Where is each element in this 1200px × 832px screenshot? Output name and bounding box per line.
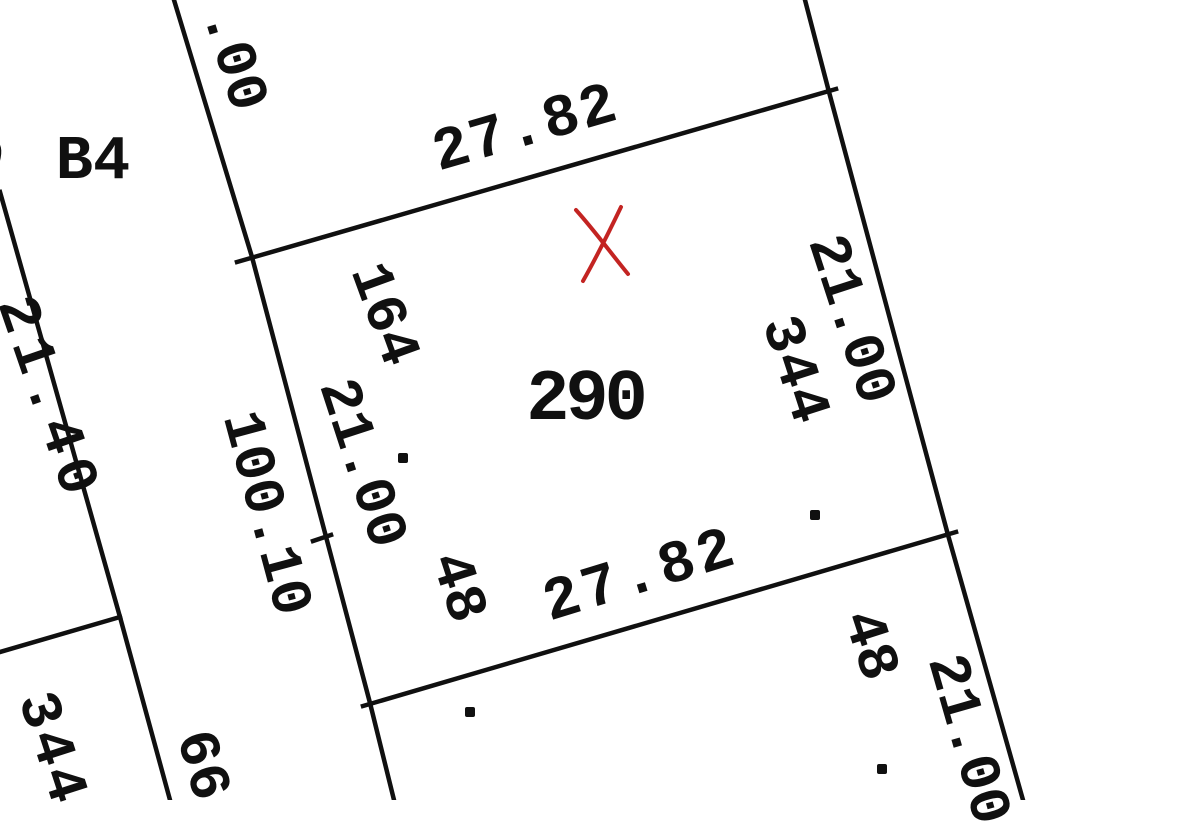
block-label-b4: B4 (56, 131, 130, 193)
survey-dot (877, 764, 887, 774)
survey-dot (465, 707, 475, 717)
parcel-number-290: 290 (526, 364, 644, 436)
survey-dot (398, 453, 408, 463)
red-x-marker (583, 207, 621, 281)
road-branch-line (0, 617, 120, 652)
survey-dot (810, 510, 820, 520)
parcel-east-line (805, 0, 1023, 800)
plat-map: 290B40.0027.8221.0034416421.00100.1021.4… (0, 0, 1200, 800)
